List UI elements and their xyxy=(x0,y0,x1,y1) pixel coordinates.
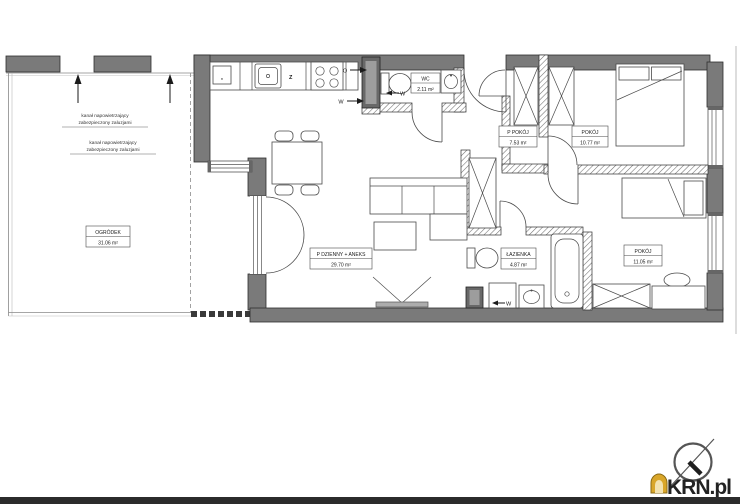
room-area: 4.87 m² xyxy=(510,262,527,268)
stove-icon xyxy=(311,62,343,90)
wc-w-label: W xyxy=(400,92,406,98)
chair xyxy=(301,185,319,195)
logo-text: KRN.pl xyxy=(667,476,731,499)
chair xyxy=(275,131,293,141)
wash-w-label: W xyxy=(506,302,512,308)
room-label-small-room: P POKÓJ 7.53 m² xyxy=(499,126,537,147)
bedroom1-window xyxy=(708,107,723,168)
vent-annotation-1: kanał napowietrzający zabezpieczony zalu… xyxy=(62,113,148,127)
vent-arrow xyxy=(75,74,82,103)
room-area: 2.11 m² xyxy=(417,87,434,93)
small-room-door xyxy=(479,70,505,96)
floor-plan-svg: kanał napowietrzający zabezpieczony zalu… xyxy=(0,0,740,504)
double-bed xyxy=(616,64,684,146)
toilet-icon xyxy=(467,248,498,268)
kitchen-sink-icon xyxy=(255,64,281,88)
dining-table xyxy=(272,131,322,195)
room-name: P POKÓJ xyxy=(507,129,529,136)
room-label-bedroom1: POKÓJ 10.77 m² xyxy=(572,126,608,147)
room-name: ŁAZIENKA xyxy=(506,252,531,258)
room-name: POKÓJ xyxy=(635,248,652,255)
vent-annotation-2: kanał napowietrzający zabezpieczony zalu… xyxy=(70,140,156,154)
vent-note-line: kanał napowietrzający xyxy=(81,113,129,119)
kitchen-counter: * Z xyxy=(210,62,358,90)
gas-o-label: O xyxy=(343,69,348,75)
floor-plan-page: kanał napowietrzający zabezpieczony zalu… xyxy=(0,0,740,504)
room-area: 7.53 m² xyxy=(510,140,527,146)
garden-wall-block xyxy=(6,56,60,72)
duct-shaft xyxy=(362,57,380,108)
fridge-icon: * xyxy=(213,66,231,84)
washing-machine-icon: W xyxy=(489,283,516,308)
room-name: OGRÓDEK xyxy=(95,229,121,236)
room-area: 29.70 m² xyxy=(331,262,351,268)
water-connection-mark: W xyxy=(338,98,364,106)
vent-note-line: zabezpieczony zaluzjami xyxy=(78,120,131,126)
desk xyxy=(652,273,705,309)
logo-house-icon xyxy=(651,474,667,493)
room-label-living: P DZIENNY + ANEKS 29.70 m² xyxy=(310,248,372,269)
room-name: POKÓJ xyxy=(582,129,599,136)
single-bed xyxy=(622,178,706,218)
vent-note-line: kanał napowietrzający xyxy=(89,140,137,146)
room-label-bedroom2: POKÓJ 11.05 m² xyxy=(624,245,662,266)
entrance-door xyxy=(464,70,506,112)
room-area: 11.05 m² xyxy=(633,259,653,265)
chair xyxy=(275,185,293,195)
krn-logo: KRN.pl xyxy=(651,439,731,499)
kitchen-window xyxy=(208,161,252,172)
room-area: 31.06 m² xyxy=(98,240,118,246)
wc-sink-icon xyxy=(441,70,461,93)
bathroom-door xyxy=(500,201,526,227)
balcony-door xyxy=(250,196,304,274)
vent-arrow xyxy=(167,74,174,103)
room-name: P DZIENNY + ANEKS xyxy=(317,252,367,258)
desk-chair xyxy=(664,273,690,287)
bathroom: ŁAZIENKA 4.87 m² W xyxy=(467,234,583,308)
coffee-table xyxy=(374,222,416,250)
tv-unit xyxy=(373,277,431,307)
garden-area: kanał napowietrzający zabezpieczony zalu… xyxy=(6,56,250,316)
water-w-label: W xyxy=(338,100,344,106)
room-area: 10.77 m² xyxy=(580,140,600,146)
room-label-garden: OGRÓDEK 31.06 m² xyxy=(86,226,130,247)
wc-door xyxy=(412,112,442,142)
bathtub-icon xyxy=(551,234,583,308)
duct-shaft xyxy=(466,287,483,308)
bedroom2-door xyxy=(548,174,578,204)
garden-wall-block xyxy=(94,56,151,72)
room-name: WC xyxy=(421,76,430,82)
toilet-icon xyxy=(381,73,411,94)
footer-bar xyxy=(0,497,740,504)
bedroom2-window xyxy=(708,213,723,273)
wc-room: W WC 2.11 m² xyxy=(381,70,461,98)
bathroom-sink-icon xyxy=(519,285,544,308)
chair xyxy=(301,131,319,141)
logo-compass-needle xyxy=(689,462,701,474)
room-label-wc: WC 2.11 m² xyxy=(411,73,440,93)
room-label-bathroom: ŁAZIENKA 4.87 m² xyxy=(501,248,536,269)
vent-note-line: zabezpieczony zaluzjami xyxy=(86,147,139,153)
